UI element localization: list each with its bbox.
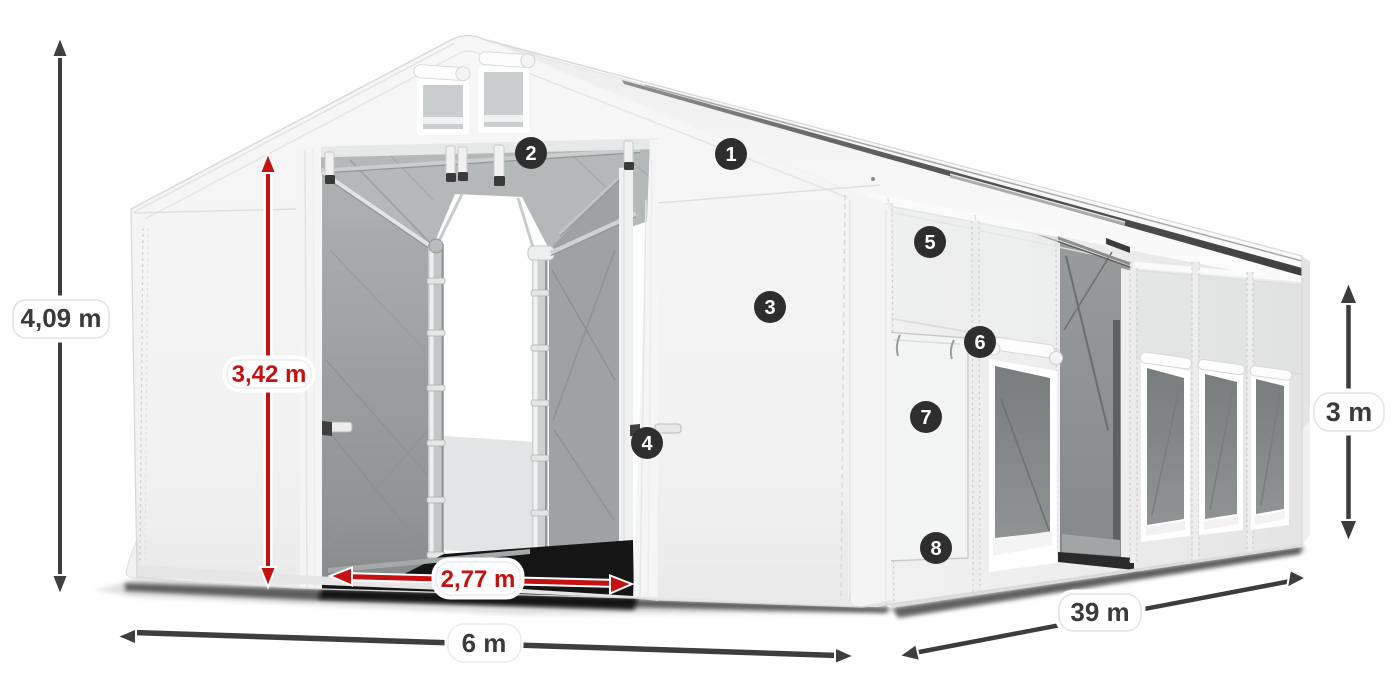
svg-text:3,42 m: 3,42 m [232,361,307,388]
svg-text:3 m: 3 m [1326,397,1373,427]
svg-text:2: 2 [525,143,536,165]
svg-text:39 m: 39 m [1070,597,1129,627]
svg-text:1: 1 [725,144,736,166]
svg-text:4: 4 [641,433,653,455]
svg-text:5: 5 [924,232,935,254]
svg-text:3: 3 [764,297,775,319]
svg-text:4,09 m: 4,09 m [21,303,102,333]
svg-text:6: 6 [974,332,985,354]
svg-text:6 m: 6 m [462,628,507,658]
svg-text:8: 8 [930,538,941,560]
svg-text:7: 7 [920,407,931,429]
svg-text:2,77 m: 2,77 m [441,566,516,593]
